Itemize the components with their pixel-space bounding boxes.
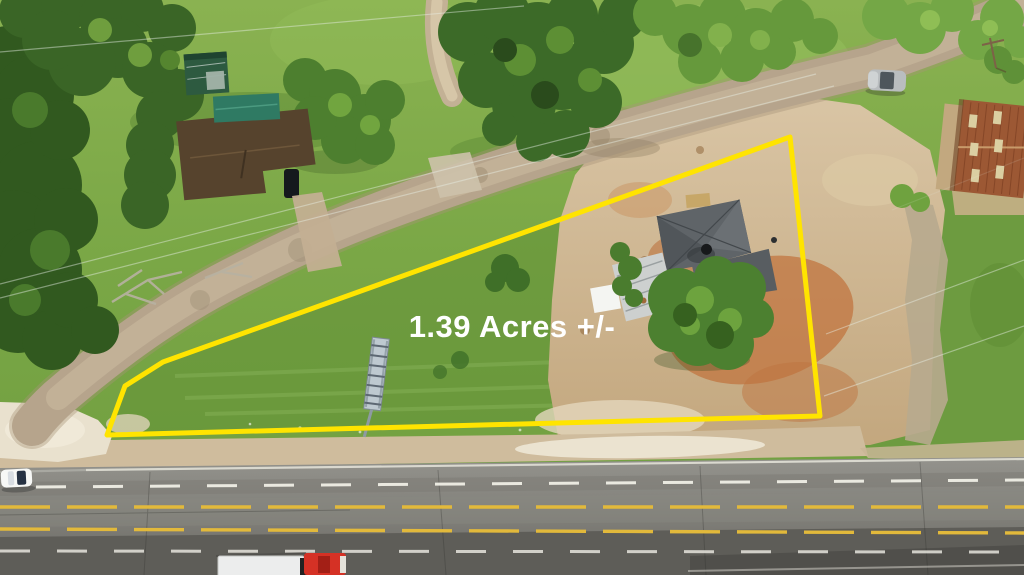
road-patch xyxy=(190,290,210,310)
green-roof-shed xyxy=(184,52,230,96)
wood-platform xyxy=(686,193,711,208)
white-sedan xyxy=(1,468,36,493)
post xyxy=(771,237,777,243)
parked-dark-car xyxy=(284,169,299,198)
teal-metal-roof xyxy=(213,93,280,122)
acreage-label: 1.39 Acres +/- xyxy=(409,309,616,344)
semi-truck xyxy=(216,553,346,575)
red-clay-patch xyxy=(742,362,858,422)
highway xyxy=(0,457,1024,575)
rusty-roof-barn xyxy=(936,98,1024,199)
aerial-photo-canvas: 1.39 Acres +/- xyxy=(0,0,1024,575)
aerial-photo: 1.39 Acres +/- xyxy=(0,0,1024,575)
dirt-spot xyxy=(696,146,704,154)
truck-trailer xyxy=(218,556,304,575)
silver-car xyxy=(865,69,906,97)
